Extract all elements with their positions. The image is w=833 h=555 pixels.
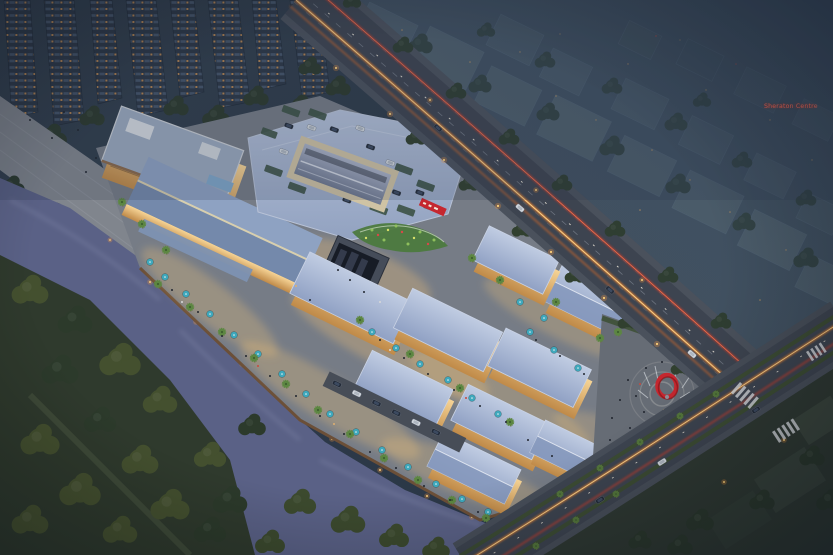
rendering-canvas: Sheraton Centre Sheraton Centre [0,0,833,555]
cool-top-tint [0,0,833,200]
aerial-rendering: Sheraton Centre Sheraton Centre [0,0,833,555]
